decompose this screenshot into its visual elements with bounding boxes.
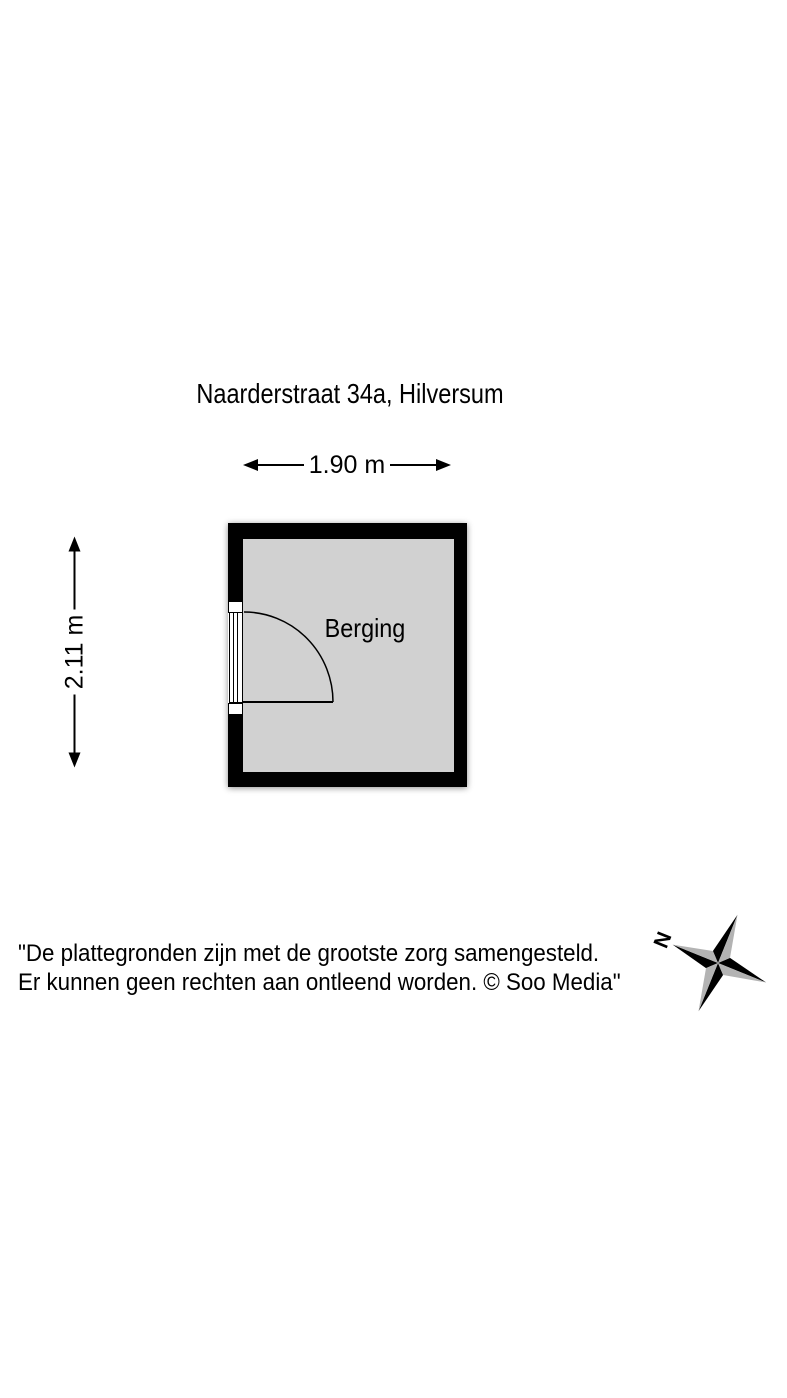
compass-star (673, 915, 767, 1011)
arrowhead-right-icon (69, 536, 81, 551)
compass-north-label: N (653, 929, 677, 952)
arrowhead-left-icon (243, 459, 258, 471)
door-swing-arc-icon (228, 523, 467, 787)
dimension-line (258, 464, 304, 466)
arrowhead-right-icon (436, 459, 451, 471)
disclaimer: "De plattegronden zijn met de grootste z… (18, 939, 621, 997)
page-title: Naarderstraat 34a, Hilversum (196, 379, 503, 409)
dimension-line (390, 464, 436, 466)
width-dimension: 1.90 m (243, 451, 451, 479)
width-dimension-label: 1.90 m (309, 451, 385, 479)
disclaimer-line-1: "De plattegronden zijn met de grootste z… (18, 939, 621, 968)
compass-rose-icon: N (653, 898, 783, 1028)
height-dimension: 2.11 m (61, 537, 89, 768)
room-label: Berging (275, 612, 455, 644)
height-dimension-label: 2.11 m (61, 615, 89, 690)
dimension-line (74, 551, 76, 609)
dimension-line (74, 694, 76, 752)
arrowhead-left-icon (69, 753, 81, 768)
disclaimer-line-2: Er kunnen geen rechten aan ontleend word… (18, 968, 621, 997)
